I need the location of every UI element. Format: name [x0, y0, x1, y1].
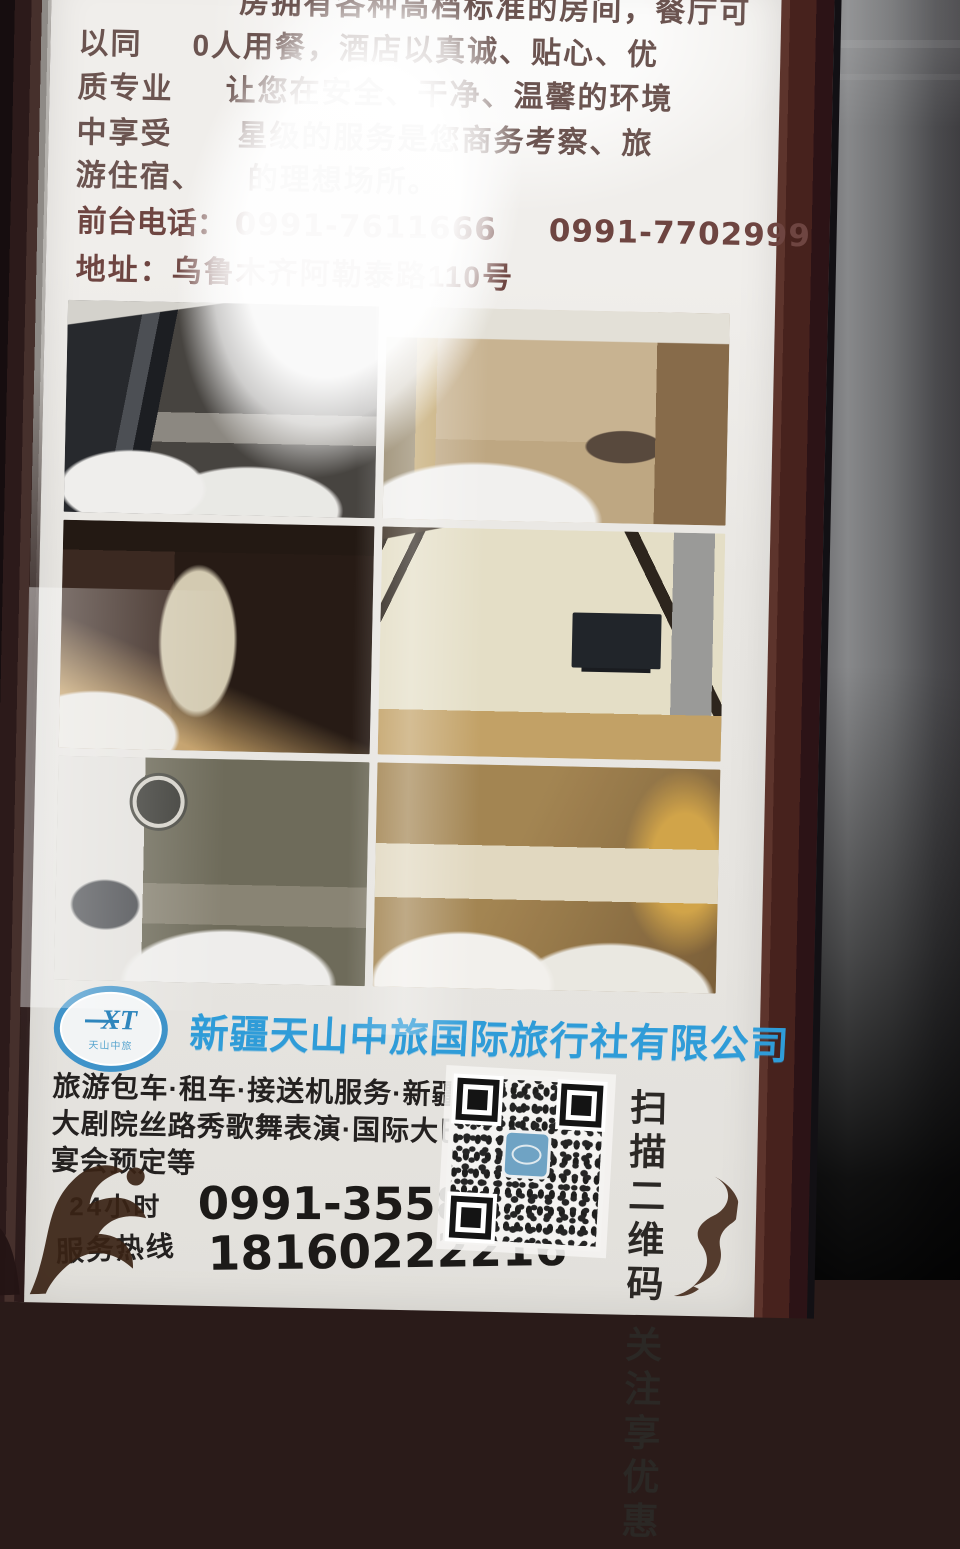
qr-center-logo	[504, 1133, 548, 1177]
address-label: 地址：	[75, 253, 172, 288]
agency-logo-subtext: 天山中旅	[88, 1036, 132, 1052]
intro-fragment: 以同	[78, 18, 143, 63]
tv-screen	[572, 613, 662, 670]
intro-fragment: 质专业	[77, 62, 174, 108]
intro-fragment: 游住宿、	[75, 150, 204, 197]
intro-line: 房拥有各种高档标准的房间，餐厅可	[51, 0, 52, 15]
intro-fragment: 让您在安全、干净、温馨的环境	[225, 65, 674, 118]
qr-caption-scan: 扫描二维码	[620, 1088, 666, 1309]
room-photo-dark-wood-suite	[59, 520, 375, 754]
qr-captions: 扫描二维码 关注享优惠	[613, 1087, 675, 1288]
intro-line: 中享受 星级的服务是您商务考察、旅	[48, 106, 49, 148]
front-desk-phone-1: 0991-7611666	[234, 206, 497, 247]
room-photo-warm-suite	[383, 307, 730, 526]
travel-agency-row: XT 天山中旅 新疆天山中旅国际旅行社有限公司	[53, 988, 735, 1082]
front-desk-label: 前台电话：	[76, 205, 227, 241]
agency-name: 新疆天山中旅国际旅行社有限公司	[188, 1003, 791, 1072]
intro-fragment: 的理想场所。	[247, 154, 440, 202]
hotel-address: 地址：乌鲁木齐阿勒泰路110号	[75, 244, 514, 297]
qr-finder-top-right	[559, 1083, 603, 1127]
intro-line: 游住宿、 的理想场所。	[47, 149, 48, 191]
scroll-flourish-decoration	[670, 1168, 742, 1304]
elevator-wall-scene: 房拥有各种高档标准的房间，餐厅可 以同 0人用餐，酒店以真诚、贴心、优 质专业 …	[0, 0, 960, 1280]
intro-fragment: 中享受	[76, 107, 173, 153]
agency-logo-monogram: XT	[85, 1006, 137, 1035]
qr-code	[442, 1071, 609, 1252]
room-photo-study-tv	[378, 526, 726, 761]
floral-flourish-decoration	[0, 1075, 310, 1296]
address-value: 乌鲁木齐阿勒泰路110号	[171, 255, 514, 295]
qr-finder-top-left	[455, 1078, 499, 1122]
room-photo-golden-twin	[373, 762, 721, 993]
room-photo-grid	[54, 300, 730, 994]
qr-finder-bottom-left	[449, 1195, 493, 1239]
room-photo-olive-wall	[54, 756, 370, 986]
qr-caption-follow: 关注享优惠	[615, 1325, 661, 1546]
intro-line: 以同 0人用餐，酒店以真诚、贴心、优	[50, 17, 51, 59]
wall-clock	[132, 775, 185, 828]
room-photo-twin-dark-wall	[64, 300, 379, 518]
intro-line: 质专业 让您在安全、干净、温馨的环境	[49, 61, 50, 103]
agency-logo: XT 天山中旅	[53, 985, 169, 1073]
front-desk-phone-2: 0991-7702999	[548, 213, 811, 254]
